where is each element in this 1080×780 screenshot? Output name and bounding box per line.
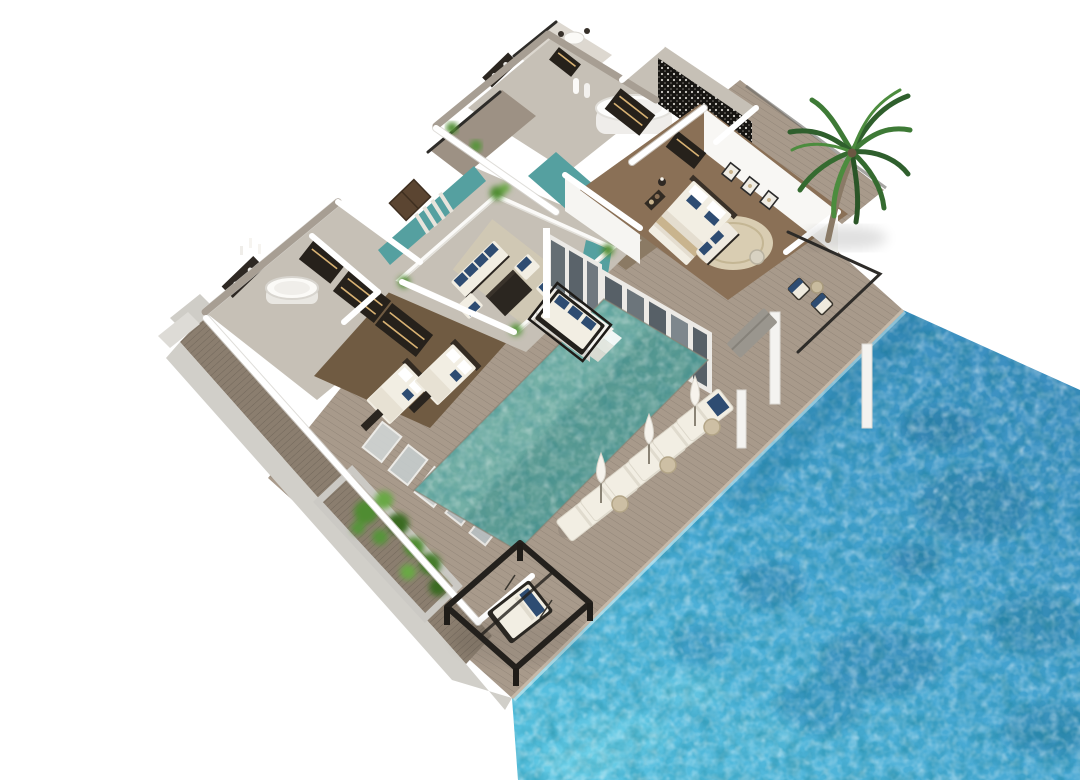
side-table — [612, 496, 628, 512]
terrace-table — [811, 281, 823, 293]
round-bathtub — [266, 277, 318, 304]
pendant-lights — [240, 238, 261, 255]
white-pillar — [862, 344, 872, 428]
white-pillar — [737, 390, 746, 448]
side-table — [660, 457, 676, 473]
side-table — [704, 419, 720, 435]
villa-render-canvas — [0, 0, 1080, 780]
pouf — [750, 250, 764, 264]
